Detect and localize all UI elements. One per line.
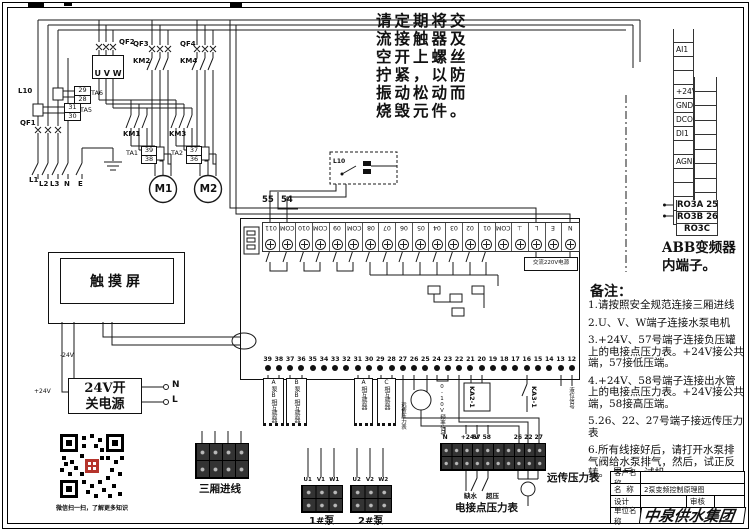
terminal-dot-icon — [321, 365, 327, 371]
psu-terminal-n: N — [172, 380, 180, 390]
bottom-terminal: 25 — [420, 357, 431, 378]
terminal-dot-icon — [445, 365, 451, 371]
abb-terminal: +24V — [673, 85, 694, 99]
bottom-terminal: 21 — [465, 357, 476, 378]
psu-box: 24V开关电源 — [68, 378, 142, 414]
top-terminal: 08 — [363, 223, 380, 251]
screw-terminal-icon — [398, 239, 409, 250]
relay-label-ka2: KA2-1 — [468, 386, 476, 410]
screw-terminal-icon — [315, 239, 326, 250]
top-terminal: 04 — [429, 223, 446, 251]
breaker-label-qf3: QF3 — [133, 40, 149, 48]
ac-power-label: 交流220V电源 — [524, 257, 578, 271]
pump1-terminal-label: U1 — [301, 477, 314, 483]
screw-terminal-icon — [465, 239, 476, 250]
ct-box-1: A泵B相互感器 — [263, 378, 284, 426]
wire-label-l10: L10 — [18, 87, 32, 95]
pump1-terminal-label: W1 — [328, 477, 341, 483]
bottom-terminal: 16 — [521, 357, 532, 378]
pressure-terminal-label: 26 — [513, 434, 523, 441]
screw-terminal-icon — [498, 239, 509, 250]
top-terminal: N — [562, 223, 579, 251]
terminal-dot-icon — [479, 365, 485, 371]
abb-caption-line1: ABB变频器 — [662, 236, 736, 256]
screw-terminal-icon — [282, 239, 293, 250]
bottom-terminal: 28 — [386, 357, 397, 378]
freq-signal-label: 0-10V频率信号 — [437, 384, 446, 426]
top-terminal: 010 — [296, 223, 313, 251]
abb-terminal-blank — [694, 121, 717, 136]
notice-line: 流接触器及 — [376, 30, 476, 48]
notice-line: 振动松动而 — [376, 84, 476, 102]
ct-box-3: A相互感器 — [354, 378, 373, 426]
terminal-dot-icon — [400, 365, 406, 371]
pressure-terminal-label: 22 — [523, 434, 533, 441]
pump1-label: 1#泵 — [309, 512, 334, 527]
abb-terminal — [673, 29, 694, 43]
terminal-dot-icon — [535, 365, 541, 371]
top-terminal: 06 — [396, 223, 413, 251]
interlock-wire-label: L10 — [333, 158, 345, 165]
terminal-dot-icon — [411, 365, 417, 371]
terminal-dot-icon — [434, 365, 440, 371]
note-item: 3.+24V、57号端子连接负压罐上的电接点压力表。+24V接公共端，57接低压… — [588, 335, 745, 370]
bottom-terminal: 22 — [454, 357, 465, 378]
terminal-dot-icon — [287, 365, 293, 371]
titleblock-company-label: 单位名称 — [610, 507, 641, 524]
note-item: 5.26、22、27号端子接远传压力表 — [588, 416, 745, 439]
pump2-terminal-labels: U2V2W2 — [350, 477, 390, 483]
pump1-terminal-label: V1 — [314, 477, 327, 483]
titleblock-company-value: 中泉供水集团 — [639, 507, 746, 524]
terminal-dot-icon — [276, 365, 282, 371]
abb-terminal-blank — [694, 150, 717, 165]
top-terminal: 011 — [263, 223, 280, 251]
pressure-terminal-label: 27 — [534, 434, 544, 441]
wire-label-pos24v: +24V — [34, 388, 51, 395]
pump1-terminal-block — [301, 485, 343, 513]
screw-terminal-icon — [448, 239, 459, 250]
screw-terminal-icon — [481, 239, 492, 250]
touchscreen: 触摸屏 — [60, 258, 174, 304]
switch-label-overpressure: 超压 — [486, 490, 499, 500]
gauge-label-inner: 远传压力表 — [398, 402, 407, 442]
abb-relay-output-block: RO3A 25RO3B 26RO3C — [676, 200, 718, 236]
level-signal-label: 液位信号 — [566, 387, 575, 417]
screw-terminal-icon — [382, 239, 393, 250]
abb-terminal-column-left: AI1+24VGNDDCOMDI1AGND — [673, 29, 694, 225]
note-item: 4.+24V、58号端子连接出水管上的电接点压力表。+24V接公共端，58接高压… — [588, 376, 745, 411]
motor-2: M2 — [195, 183, 222, 195]
terminal-dot-icon — [467, 365, 473, 371]
qr-code — [60, 434, 124, 498]
terminal-dot-icon — [332, 365, 338, 371]
ct-terminals-ta2: 3736 — [186, 146, 202, 164]
terminal-dot-icon — [501, 365, 507, 371]
motor-1: M1 — [150, 183, 177, 195]
maintenance-notice: 请定期将交流接触器及空开上螺丝拧紧，以防振动松动而烧毁元件。 — [376, 12, 476, 120]
bottom-terminal: 13 — [555, 357, 566, 378]
bottom-terminal: 27 — [397, 357, 408, 378]
bottom-terminal: 15 — [532, 357, 543, 378]
phase-label-l1: L1 — [29, 176, 38, 184]
top-terminal: 02 — [463, 223, 480, 251]
bottom-terminal: 24 — [431, 357, 442, 378]
terminal-dot-icon — [366, 365, 372, 371]
terminal-dot-icon — [298, 365, 304, 371]
bottom-terminal: 14 — [544, 357, 555, 378]
contactor-label-km2: KM2 — [133, 57, 150, 65]
top-terminal: COM — [346, 223, 363, 251]
phase-label-l3: L3 — [50, 180, 59, 188]
pump1-terminal-labels: U1V1W1 — [301, 477, 341, 483]
abb-terminal-blank — [694, 77, 717, 92]
pressure-block-labels: N+24V5758262227 — [440, 434, 544, 441]
top-terminal: L — [529, 223, 546, 251]
terminal-54-label: 54 — [281, 195, 293, 205]
qr-logo — [85, 459, 99, 473]
ct-box-2: B泵B相互感器 — [286, 378, 307, 426]
ct-label-ta2: TA2 — [171, 149, 183, 157]
contact-gauge-caption: 电接点压力表 — [455, 500, 518, 515]
top-terminal: ⊥ — [512, 223, 529, 251]
terminal-dot-icon — [389, 365, 395, 371]
screw-terminal-icon — [332, 239, 343, 250]
terminal-dot-icon — [265, 365, 271, 371]
abb-relay-terminal: RO3B 26 — [676, 212, 718, 224]
switch-label-low-water: 缺水 — [464, 490, 477, 500]
abb-terminal — [673, 183, 694, 197]
bottom-terminal: 12 — [566, 357, 577, 378]
controller-bottom-terminal-strip: 39 38 37 36 35 34 33 32 — [262, 357, 578, 378]
pump2-label: 2#泵 — [358, 512, 383, 527]
pressure-terminal-label: N — [440, 434, 450, 441]
bottom-terminal: 18 — [499, 357, 510, 378]
abb-relay-terminal: RO3C — [676, 224, 718, 236]
bottom-terminal: 32 — [341, 357, 352, 378]
screw-terminal-icon — [548, 239, 559, 250]
breaker-label-qf4: QF4 — [180, 40, 196, 48]
notes-title: 备注： — [590, 281, 632, 301]
terminal-dot-icon — [310, 365, 316, 371]
bottom-terminal: 29 — [375, 357, 386, 378]
top-terminal: 07 — [379, 223, 396, 251]
pressure-terminal-label: +24V — [461, 434, 471, 441]
screw-terminal-icon — [432, 239, 443, 250]
pressure-terminal-label — [450, 434, 460, 441]
phase-label-e: E — [78, 180, 83, 188]
terminal-dot-icon — [456, 365, 462, 371]
abb-terminal: GND — [673, 99, 694, 113]
screw-terminal-icon — [348, 239, 359, 250]
notice-line: 请定期将交 — [376, 12, 476, 30]
relay-label-ka3: KA3-1 — [530, 386, 538, 410]
ct-label-ta5: TA5 — [80, 106, 92, 114]
abb-relay-terminal: RO3A 25 — [676, 200, 718, 212]
abb-terminal: DCOM — [673, 113, 694, 127]
top-terminal: 03 — [446, 223, 463, 251]
screw-terminal-icon — [531, 239, 542, 250]
phase-label-n: N — [64, 180, 70, 188]
abb-terminal-blank — [694, 164, 717, 179]
ct-label-ta6: TA6 — [91, 89, 103, 97]
pressure-terminal-label: 58 — [482, 434, 492, 441]
bottom-terminal: 20 — [476, 357, 487, 378]
phase-label-l2: L2 — [39, 180, 48, 188]
terminal-dot-icon — [355, 365, 361, 371]
abb-terminal — [673, 141, 694, 155]
terminal-dot-icon — [546, 365, 552, 371]
screw-terminal-icon — [515, 239, 526, 250]
bottom-terminal: 36 — [296, 357, 307, 378]
top-terminal: 05 — [413, 223, 430, 251]
breaker-label-qf1: QF1 — [20, 119, 36, 127]
schematic-sheet: 请定期将交流接触器及空开上螺丝拧紧，以防振动松动而烧毁元件。 QF2 QF3 K… — [0, 0, 751, 531]
top-terminal: 09 — [330, 223, 347, 251]
pump2-terminal-label: U2 — [350, 477, 363, 483]
terminal-dot-icon — [377, 365, 383, 371]
pump2-terminal-block — [350, 485, 392, 513]
ct-terminals-ta1: 3938 — [141, 146, 157, 164]
top-terminal: COM — [496, 223, 513, 251]
notice-line: 拧紧，以防 — [376, 66, 476, 84]
screw-terminal-icon — [565, 239, 576, 250]
top-terminal: 01 — [479, 223, 496, 251]
abb-terminal: AGND — [673, 155, 694, 169]
abb-terminal-blank — [694, 106, 717, 121]
top-terminal: E — [546, 223, 563, 251]
pressure-terminal-label — [502, 434, 512, 441]
abb-terminal-blank — [694, 179, 717, 194]
ct-label-ta1: TA1 — [126, 149, 138, 157]
pressure-terminal-block — [440, 443, 546, 471]
controller-top-terminal-strip: 011 COM 010 COM 09 COM 08 07 — [262, 222, 580, 252]
bottom-terminal: 23 — [442, 357, 453, 378]
terminal-dot-icon — [343, 365, 349, 371]
abb-terminal: AI1 — [673, 43, 694, 57]
bottom-terminal: 33 — [330, 357, 341, 378]
incoming-terminal-block — [195, 443, 249, 479]
note-item: 2.U、V、W端子连接水泵电机 — [588, 318, 745, 330]
terminal-55-label: 55 — [262, 195, 274, 205]
bottom-terminal: 31 — [352, 357, 363, 378]
incoming-block-label: 三厢进线 — [199, 481, 241, 496]
abb-terminal-blank — [694, 135, 717, 150]
terminal-dot-icon — [524, 365, 530, 371]
terminal-dot-icon — [569, 365, 575, 371]
screw-terminal-icon — [265, 239, 276, 250]
abb-terminal — [673, 71, 694, 85]
abb-terminal-blank — [694, 92, 717, 107]
bottom-terminal: 39 — [262, 357, 273, 378]
terminal-dot-icon — [422, 365, 428, 371]
abb-caption-line2: 内端子。 — [662, 254, 716, 274]
pump2-terminal-label: W2 — [377, 477, 390, 483]
top-terminal: COM — [313, 223, 330, 251]
note-item: 1.请按照安全规范连接三厢进线 — [588, 300, 745, 312]
pressure-terminal-label — [492, 434, 502, 441]
terminal-dot-icon — [512, 365, 518, 371]
screw-terminal-icon — [299, 239, 310, 250]
ct-box-4: C相互感器 — [377, 378, 396, 426]
bottom-terminal: 30 — [363, 357, 374, 378]
psu-terminal-l: L — [172, 395, 178, 405]
qr-caption: 微信扫一扫，了解更多知识 — [48, 503, 136, 512]
ct-terminals-ta5: 3130 — [64, 103, 81, 121]
abb-terminal — [673, 57, 694, 71]
wire-label-neg24v: -24V — [60, 352, 74, 359]
pressure-terminal-label: 57 — [471, 434, 481, 441]
top-terminal: COM — [280, 223, 297, 251]
ct-terminals-ta6: 2928 — [74, 86, 91, 104]
pump2-terminal-label: V2 — [363, 477, 376, 483]
abb-terminal: DI1 — [673, 127, 694, 141]
bottom-terminal: 37 — [285, 357, 296, 378]
bottom-terminal: 34 — [318, 357, 329, 378]
notice-line: 空开上螺丝 — [376, 48, 476, 66]
bottom-terminal: 38 — [273, 357, 284, 378]
contactor-label-km4: KM4 — [180, 57, 197, 65]
contactor-label-km3: KM3 — [169, 130, 186, 138]
abb-terminal — [673, 169, 694, 183]
bottom-terminal: 17 — [510, 357, 521, 378]
contactor-label-km1: KM1 — [123, 130, 140, 138]
bottom-terminal: 35 — [307, 357, 318, 378]
screw-terminal-icon — [415, 239, 426, 250]
notice-line: 烧毁元件。 — [376, 102, 476, 120]
bottom-terminal: 26 — [408, 357, 419, 378]
terminal-dot-icon — [490, 365, 496, 371]
notes-list: 1.请按照安全规范连接三厢进线2.U、V、W端子连接水泵电机3.+24V、57号… — [588, 300, 745, 486]
terminal-dot-icon — [558, 365, 564, 371]
bottom-terminal: 19 — [487, 357, 498, 378]
screw-terminal-icon — [365, 239, 376, 250]
vfd-output-box: U V W — [92, 55, 124, 79]
